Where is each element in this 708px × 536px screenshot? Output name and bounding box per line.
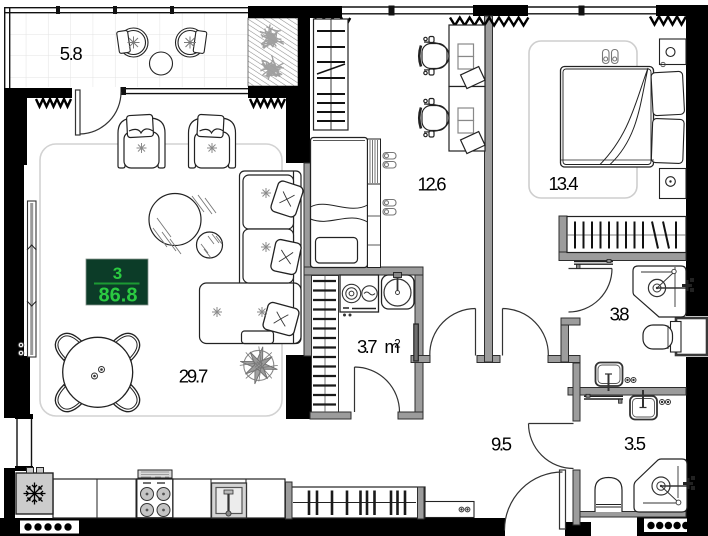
svg-text:86.8: 86.8 bbox=[99, 285, 138, 307]
svg-text:29.7: 29.7 bbox=[179, 366, 209, 387]
svg-text:3.8: 3.8 bbox=[610, 304, 630, 325]
svg-text:5.8: 5.8 bbox=[60, 43, 83, 64]
svg-text:12.6: 12.6 bbox=[418, 174, 447, 195]
svg-text:9.5: 9.5 bbox=[491, 434, 512, 455]
svg-text:3.7: 3.7 bbox=[357, 336, 378, 357]
svg-text:2: 2 bbox=[394, 339, 400, 351]
svg-text:3: 3 bbox=[113, 264, 122, 283]
svg-text:13.4: 13.4 bbox=[549, 173, 579, 194]
svg-text:3.5: 3.5 bbox=[624, 433, 646, 454]
